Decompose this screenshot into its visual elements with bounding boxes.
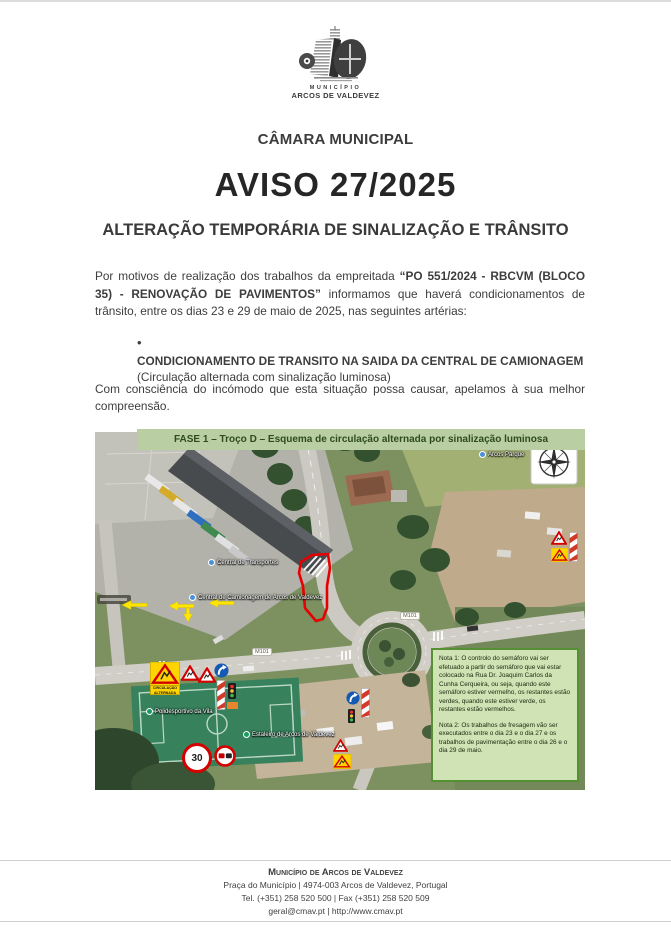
bullet-dot: • (137, 335, 142, 352)
barrier-post-icon (570, 532, 578, 561)
map-marker-polidesportivo: Polidesportivo da Vila (146, 708, 213, 716)
barrier-post-icon (362, 688, 370, 717)
keep-right-sign-icon (346, 691, 359, 704)
map-marker-label: Central de Camionagem de Arcos de Valdev… (198, 595, 322, 601)
orange-panel-icon (227, 702, 238, 709)
map-marker-central-camionagem: Central de Camionagem de Arcos de Valdev… (189, 594, 322, 602)
alternating-circulation-sign-icon (333, 754, 351, 769)
footer-phones: Tel. (+351) 258 520 500 | Fax (+351) 258… (0, 892, 671, 905)
notice-page: MUNICÍPIO ARCOS DE VALDEVEZ CÂMARA MUNIC… (0, 0, 671, 950)
map-phase-banner: FASE 1 – Troço D – Esquema de circulação… (137, 429, 585, 450)
bullet-item: • CONDICIONAMENTO DE TRANSITO NA SAIDA D… (137, 336, 585, 386)
notice-subtitle: ALTERAÇÃO TEMPORÁRIA DE SINALIZAÇÃO E TR… (0, 221, 671, 240)
intro-paragraph: Por motivos de realização dos trabalhos … (95, 268, 585, 321)
map-notes-box: Nota 1: O controlo do semáforo vai ser e… (431, 648, 579, 782)
map-pin-icon (243, 731, 250, 738)
map-marker-central-transportes: Central de Transportes (208, 559, 278, 567)
sign-caption-panel: CIRCULAÇÃO ALTERNADA (150, 685, 180, 695)
map-note-1: Nota 1: O controlo do semáforo vai ser e… (439, 655, 571, 715)
page-footer: Município de Arcos de Valdevez Praça do … (0, 860, 671, 922)
closing-paragraph: Com consciência do incómodo que esta sit… (95, 381, 585, 415)
map-figure: FASE 1 – Troço D – Esquema de circulação… (95, 432, 585, 790)
notice-title: AVISO 27/2025 (0, 166, 671, 204)
footer-web: geral@cmav.pt | http://www.cmav.pt (0, 905, 671, 918)
no-overtaking-sign-icon (216, 747, 235, 766)
bullet-main-text: CONDICIONAMENTO DE TRANSITO NA SAIDA DA … (137, 353, 585, 370)
map-marker-label: Arcos Parque (488, 452, 524, 458)
map-pin-icon (189, 594, 196, 601)
seal-subtitle: ARCOS DE VALDEVEZ (0, 91, 671, 100)
map-note-2: Nota 2: Os trabalhos de fresagem vão ser… (439, 722, 571, 756)
barrier-post-icon (217, 680, 225, 709)
road-ref-badge: M101 (252, 648, 272, 656)
map-marker-estaleiro: Estaleiro de Arcos de Valdevez (243, 731, 335, 739)
intro-pre: Por motivos de realização dos trabalhos … (95, 269, 400, 283)
map-marker-label: Central de Transportes (217, 560, 278, 566)
map-pin-icon (146, 708, 153, 715)
municipal-seal-icon (292, 26, 380, 84)
alternating-circulation-sign-icon (551, 548, 568, 562)
alternating-circulation-sign-icon (150, 662, 179, 686)
road-ref-badge: M101 (400, 612, 420, 620)
traffic-light-icon (348, 709, 355, 723)
traffic-light-icon (228, 683, 236, 699)
map-marker-label: Polidesportivo da Vila (155, 709, 213, 715)
speed-limit-value: 30 (191, 753, 202, 764)
map-marker-arcos-parque: Arcos Parque (479, 451, 524, 459)
footer-municipality-name: Município de Arcos de Valdevez (0, 866, 671, 879)
map-pin-icon (479, 451, 486, 458)
keep-right-sign-icon (214, 663, 228, 677)
municipal-logo: MUNICÍPIO ARCOS DE VALDEVEZ (0, 26, 671, 100)
map-pin-icon (208, 559, 215, 566)
footer-address: Praça do Município | 4974-003 Arcos de V… (0, 879, 671, 892)
speed-limit-sign: 30 (182, 743, 212, 773)
org-title: CÂMARA MUNICIPAL (0, 131, 671, 148)
map-marker-label: Estaleiro de Arcos de Valdevez (252, 732, 335, 738)
